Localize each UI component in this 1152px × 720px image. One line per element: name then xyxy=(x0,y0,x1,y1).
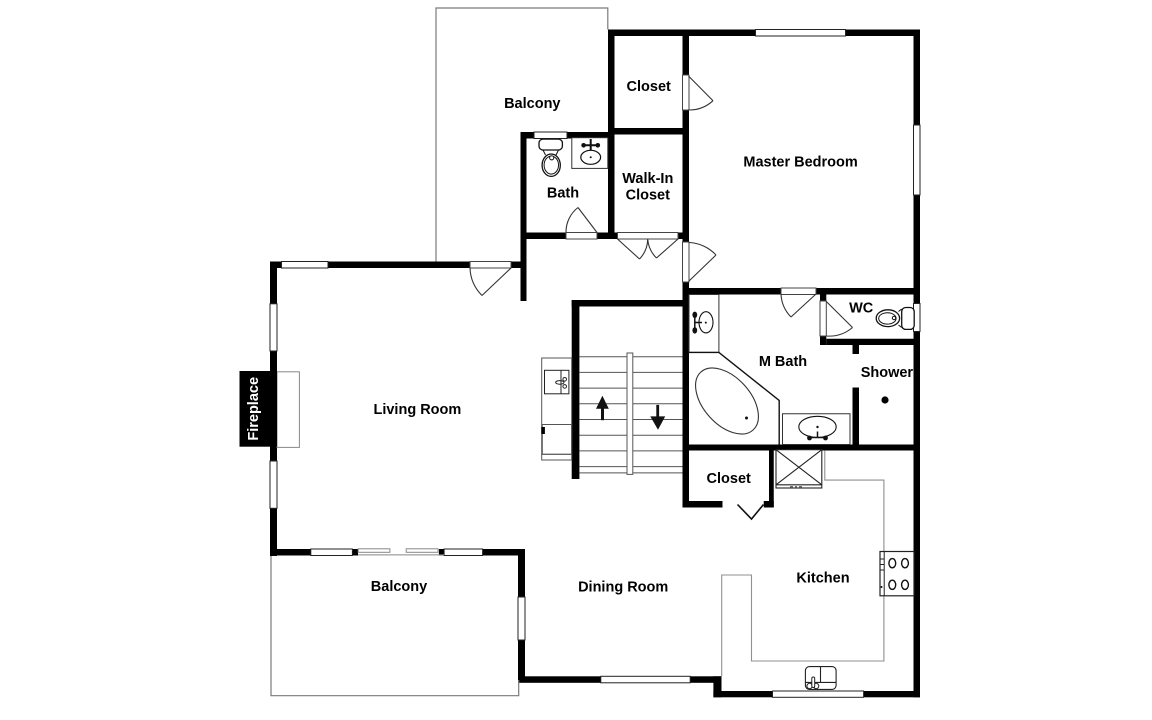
svg-text:M Bath: M Bath xyxy=(759,354,807,370)
svg-text:Shower: Shower xyxy=(861,365,914,381)
svg-text:Bath: Bath xyxy=(547,186,579,202)
svg-text:Dining Room: Dining Room xyxy=(578,579,668,595)
svg-text:Master Bedroom: Master Bedroom xyxy=(743,155,857,171)
svg-text:Kitchen: Kitchen xyxy=(796,571,849,587)
svg-text:Closet: Closet xyxy=(707,471,751,487)
svg-text:Living Room: Living Room xyxy=(373,402,461,418)
svg-text:Fireplace: Fireplace xyxy=(246,377,262,441)
svg-text:Balcony: Balcony xyxy=(371,579,427,595)
svg-text:Walk-In: Walk-In xyxy=(622,171,673,187)
svg-text:Balcony: Balcony xyxy=(504,96,560,112)
svg-text:Closet: Closet xyxy=(626,188,670,204)
svg-text:WC: WC xyxy=(849,300,874,316)
svg-text:Closet: Closet xyxy=(627,79,671,95)
